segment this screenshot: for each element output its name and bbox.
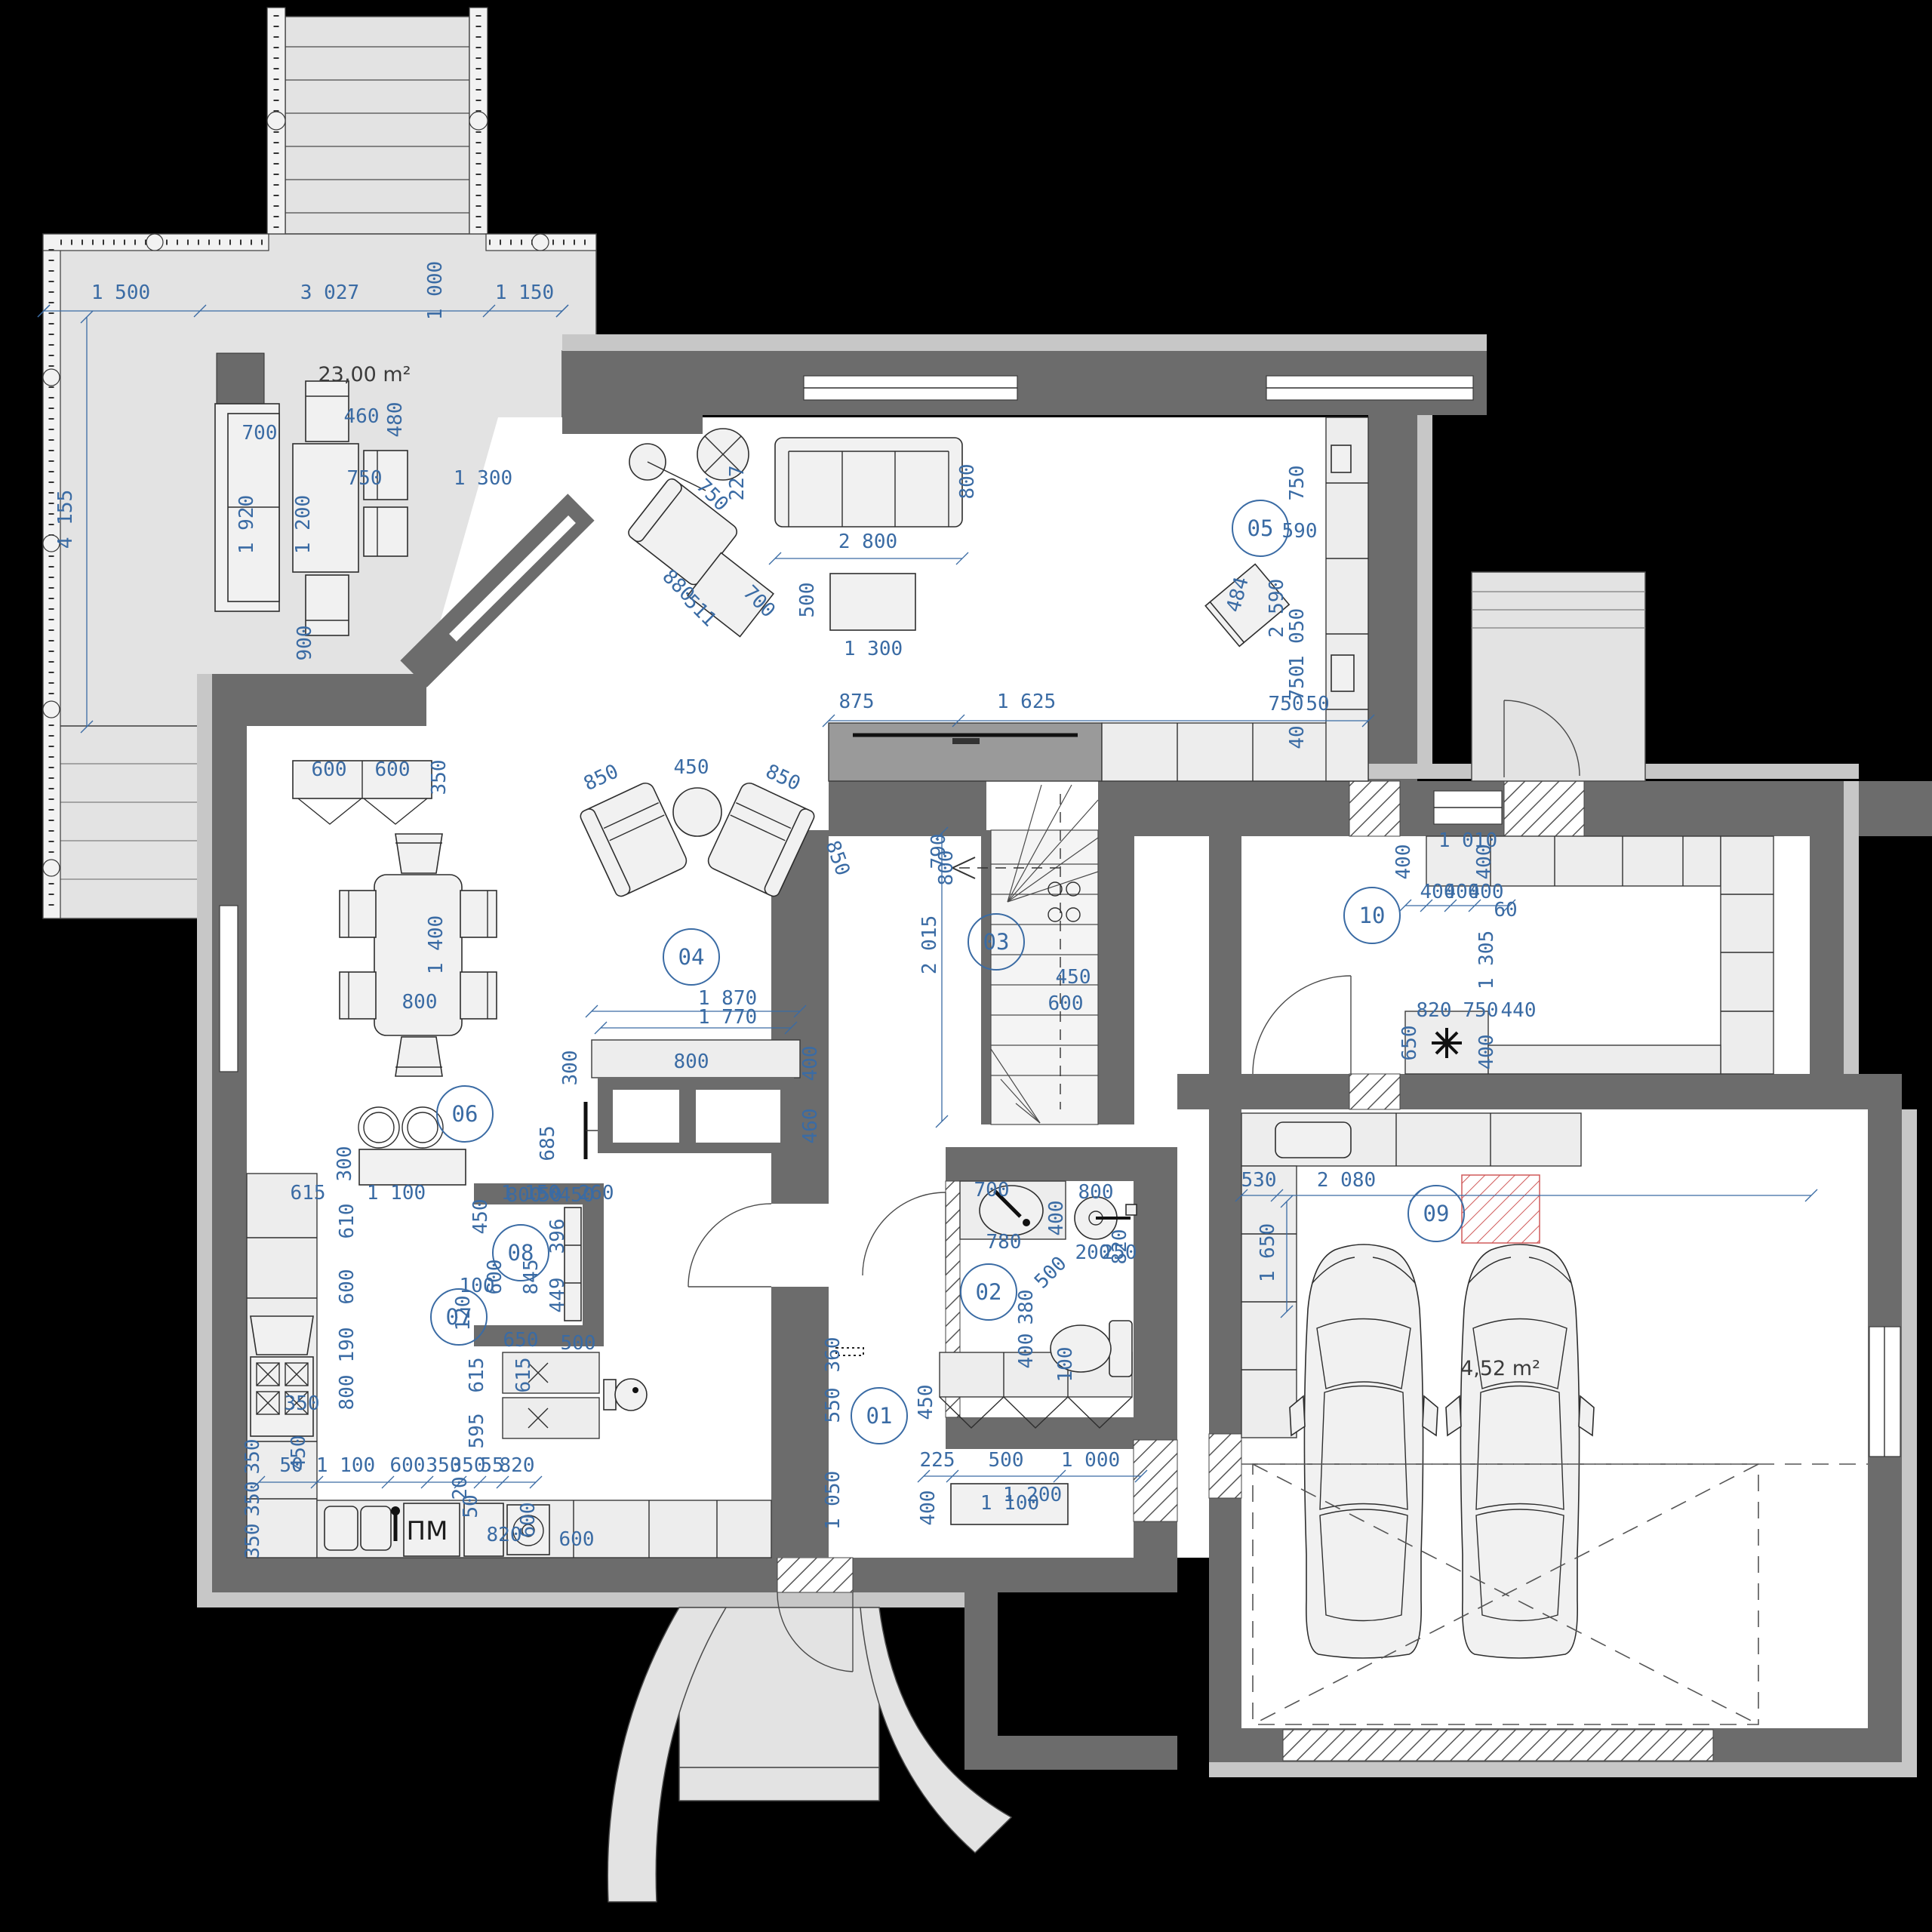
dimension-label: 685 (537, 1126, 559, 1161)
appliance-label: ПМ (407, 1516, 448, 1546)
dimension-label: 610 (336, 1204, 358, 1239)
kitchen-tall-units (1326, 417, 1368, 781)
dimension-label: 900 (294, 626, 316, 661)
dimension-label: 1 100 (980, 1492, 1039, 1515)
dimension-label: 1 100 (316, 1454, 375, 1477)
wall-porch-side (964, 1591, 998, 1770)
dimension-label: 100 (460, 1275, 495, 1297)
floor-plan-page: { "title": "first-floor-plan", "colors":… (0, 0, 1932, 1932)
dimension-label: 1 625 (997, 691, 1056, 713)
red-hatched-zone (1462, 1175, 1540, 1243)
dimension-label: 227 (726, 466, 749, 501)
dimension-label: 1 100 (367, 1182, 426, 1204)
dimension-label: 1 305 (1475, 931, 1498, 989)
dimension-label: 450 (469, 1199, 492, 1235)
dimension-label: 820 (487, 1524, 522, 1546)
dimension-label: 750 (1286, 466, 1309, 501)
robot-vacuum (604, 1379, 647, 1411)
dimension-label: 750 (1269, 693, 1304, 715)
window-left (220, 906, 238, 1072)
dimension-label: 1 650 (1257, 1223, 1279, 1282)
dimension-label: 225 (920, 1449, 955, 1472)
built-in-sink (1331, 445, 1351, 472)
wall-right-upper (1368, 415, 1417, 781)
dimension-label: 450 (915, 1385, 937, 1420)
room-number-text: 03 (983, 929, 1010, 955)
dimension-label: 500 (989, 1449, 1024, 1472)
dimension-label: 400 (1015, 1334, 1038, 1369)
dimension-label: 820 (1417, 999, 1452, 1022)
dimension-label: 800 (506, 1184, 542, 1207)
dimension-label: 600 (375, 758, 411, 781)
dimension-label: 350 (285, 1392, 320, 1415)
dimension-label: 450 (1056, 966, 1091, 989)
front-door-opening (777, 1558, 853, 1592)
dimension-label: 595 (466, 1414, 488, 1449)
wall-bath-right (1134, 1147, 1177, 1449)
room-number-text: 04 (678, 944, 705, 970)
round-table (673, 788, 721, 836)
kitchen-sink (325, 1506, 400, 1550)
wall-bottom (212, 1558, 1177, 1592)
dimension-label: 500 (561, 1332, 596, 1355)
dimension-label: 615 (291, 1182, 326, 1204)
dimension-label: 450 (559, 1184, 595, 1207)
dimension-label: 380 (1015, 1290, 1038, 1325)
dimension-label: 3 027 (300, 281, 359, 304)
garage-sink (1275, 1122, 1351, 1158)
coffee-table (830, 574, 915, 630)
dimension-label: 780 (986, 1231, 1022, 1254)
dimension-label: 615 (466, 1358, 488, 1393)
car-right (1446, 1244, 1594, 1658)
room-number-text: 09 (1423, 1201, 1450, 1226)
dimension-label: 50 (460, 1494, 482, 1518)
dimension-label: 100 (1054, 1347, 1077, 1383)
dimension-label: 600 (390, 1454, 426, 1477)
terrace-side-steps (43, 726, 212, 918)
cabinet-x-2 (503, 1398, 599, 1438)
dimension-label: 600 (559, 1528, 595, 1551)
dimension-label: 400 (799, 1046, 822, 1081)
wall-kitchen-east (771, 830, 829, 1558)
dimension-label: 396 (546, 1219, 569, 1254)
dimension-label: 600 (1048, 992, 1084, 1015)
dimension-label: 360 (822, 1337, 844, 1373)
dimension-label: 820 (500, 1454, 535, 1477)
room-number-text: 06 (452, 1101, 478, 1127)
room-number-text: 08 (508, 1240, 534, 1266)
dimension-label: 1 050 (822, 1471, 844, 1530)
dimension-label: 1 920 (235, 495, 258, 554)
dimension-label: 1 300 (454, 467, 512, 490)
floor-plan-canvas: 1 5003 0271 0001 1504 1554604807007501 3… (0, 0, 1932, 1932)
dimension-label: 190 (336, 1327, 358, 1363)
planter (217, 353, 264, 404)
room10-cabinets-east (1721, 836, 1774, 1074)
room-number-text: 07 (446, 1304, 472, 1330)
dimension-label: 40 (1286, 725, 1309, 749)
dimension-label: 750 (1463, 999, 1499, 1022)
dimension-label: 300 (334, 1146, 356, 1182)
dimension-label: 1 200 (292, 495, 315, 554)
dimension-label: 460 (344, 405, 380, 428)
dimension-label: 1 400 (425, 915, 448, 974)
area-label: 23,00 m² (318, 363, 411, 386)
dimension-label: 750 (347, 467, 383, 490)
extractor-hood (251, 1316, 313, 1355)
dimension-label: 1 000 (1061, 1449, 1120, 1472)
dimension-label: 615 (512, 1358, 535, 1393)
wall-room10-right (1810, 781, 1844, 1109)
terrace-railing-left (43, 234, 60, 918)
dimension-label: 875 (839, 691, 875, 713)
dimension-label: 300 (559, 1051, 582, 1086)
dimension-label: 2 590 (1266, 579, 1288, 638)
dimension-label: 2 080 (1317, 1169, 1376, 1192)
wall-stair-thin (981, 830, 991, 1124)
dimension-label: 400 (1473, 844, 1496, 880)
dimension-label: 350 (241, 1524, 264, 1559)
entry-porch (608, 1592, 1011, 1902)
dimension-label: 530 (1241, 1169, 1277, 1192)
dimension-label: 350 (428, 760, 451, 795)
dimension-label: 800 (1078, 1181, 1114, 1204)
room-number-text: 05 (1247, 515, 1274, 541)
car-left (1290, 1244, 1438, 1658)
sofa (775, 438, 962, 527)
dimension-label: 600 (336, 1269, 358, 1305)
wall-garage-left (1209, 1109, 1241, 1728)
dimension-label: 2 800 (838, 531, 897, 553)
dimension-label: 550 (822, 1388, 844, 1423)
dimension-label: 60 (1494, 899, 1517, 921)
dimension-label: 350 (241, 1439, 264, 1475)
terrace-top-stairs (285, 17, 469, 234)
built-in-oven (1331, 655, 1354, 691)
wall-nw-corner (562, 351, 703, 434)
dimension-label: 1 000 (424, 261, 447, 320)
room-number-text: 10 (1359, 903, 1386, 928)
dimension-label: 650 (503, 1329, 539, 1352)
dimension-label: 440 (1501, 999, 1537, 1022)
dimension-label: 250 (1102, 1241, 1137, 1264)
dimension-label: 1 050 (1286, 608, 1309, 667)
room10-door-opening (1349, 781, 1400, 836)
hob-asterisk (1432, 1028, 1462, 1058)
dimension-label: 1 770 (698, 1006, 757, 1029)
wall-room10-left (1209, 836, 1241, 1074)
garage-side-door-opening (1209, 1434, 1241, 1498)
dimension-label: 600 (312, 758, 347, 781)
dimension-label: 700 (242, 422, 278, 445)
wall-stair-right (1098, 830, 1134, 1124)
side-porch (1472, 572, 1645, 781)
dimension-label: 800 (956, 464, 979, 500)
dimension-label: 400 (1475, 1035, 1498, 1070)
garage-door-opening (1283, 1730, 1713, 1761)
vestibule-door-opening (1134, 1440, 1177, 1521)
dimension-label: 449 (546, 1278, 569, 1313)
dimension-label: 50 (1306, 693, 1329, 715)
dimension-label: 400 (1045, 1201, 1068, 1236)
room-number-text: 01 (866, 1403, 893, 1429)
dimension-label: 800 (336, 1375, 358, 1411)
dimension-label: 800 (674, 1051, 709, 1073)
dimension-label: 400 (1392, 844, 1415, 880)
room-number-text: 02 (976, 1279, 1002, 1305)
wall-room10-bottom (1177, 1074, 1844, 1109)
dimension-label: 1 300 (844, 638, 903, 660)
dimension-label: 700 (974, 1179, 1010, 1201)
dimension-label: 450 (288, 1435, 310, 1471)
dimension-label: 1 500 (91, 281, 150, 304)
tv-console (829, 723, 1124, 781)
dimension-label: 500 (796, 583, 819, 618)
dimension-label: 2 015 (918, 915, 941, 974)
dimension-label: 650 (1398, 1026, 1421, 1061)
dimension-label: 1 150 (495, 281, 554, 304)
porch-door-opening (1504, 781, 1584, 836)
dimension-label: 400 (917, 1491, 940, 1526)
dimension-label: 800 (935, 851, 958, 886)
garage-hall-door-opening (1349, 1074, 1400, 1109)
dimension-label: 450 (674, 756, 709, 779)
dimension-label: 460 (799, 1109, 822, 1144)
area-label: 4,52 m² (1460, 1357, 1540, 1380)
dimension-label: 350 (241, 1481, 264, 1517)
dimension-label: 4 155 (54, 490, 77, 549)
dimension-label: 480 (384, 402, 407, 438)
dimension-label: 800 (402, 991, 438, 1014)
